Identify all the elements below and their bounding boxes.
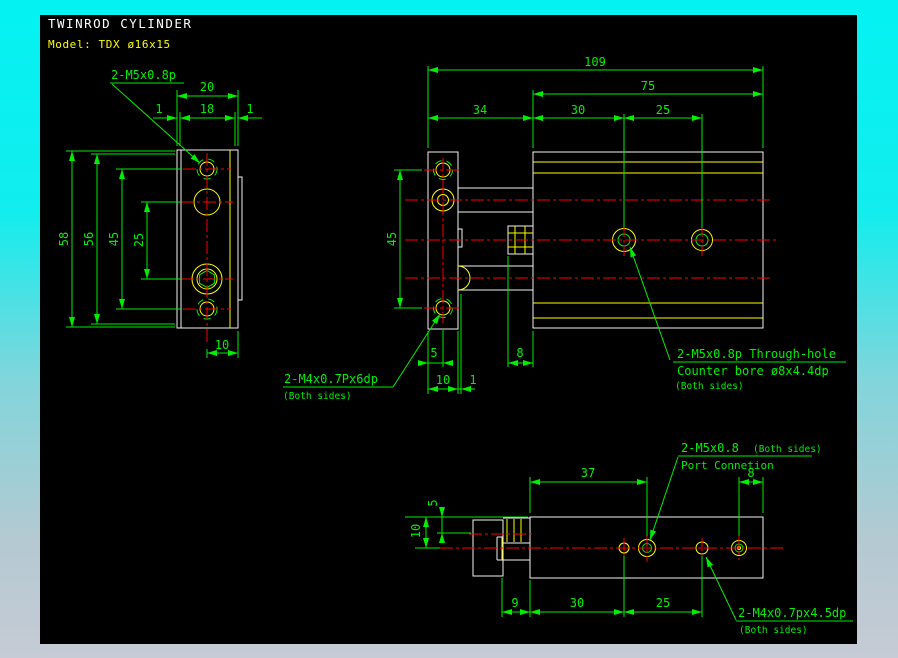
top-dim-34: 34 [473, 103, 487, 117]
top-callout-tap-line2: (Both sides) [283, 391, 352, 402]
bottom-dim-9: 9 [511, 596, 518, 610]
top-dim-25: 25 [656, 103, 670, 117]
front-callout-text: 2-M5x0.8p [111, 68, 176, 82]
top-dim-75: 75 [641, 79, 655, 93]
bottom-callout-port-sides: (Both sides) [753, 444, 822, 455]
bottom-callout-port-label: 2-M5x0.8 [681, 441, 739, 455]
cad-drawing: TWINROD CYLINDER Model: TDX ø16x15 [0, 0, 898, 658]
cad-viewer-window: TWINROD CYLINDER Model: TDX ø16x15 [0, 0, 898, 658]
bottom-dim-10: 10 [409, 524, 423, 538]
top-dim-109: 109 [584, 55, 606, 69]
bottom-callout-tap-line1: 2-M4x0.7px4.5dp [738, 606, 846, 620]
bottom-callout-port-line2: Port Connetion [681, 459, 774, 472]
top-dim-8: 8 [516, 346, 523, 360]
drawing-title: TWINROD CYLINDER [48, 16, 192, 31]
bottom-dim-25: 25 [656, 596, 670, 610]
front-dim-58: 58 [57, 232, 71, 246]
front-dim-45: 45 [107, 232, 121, 246]
front-dim-10: 10 [215, 338, 229, 352]
front-dim-20: 20 [200, 80, 214, 94]
front-dim-18: 18 [200, 102, 214, 116]
front-dim-1-right: 1 [246, 102, 253, 116]
front-dim-56: 56 [82, 232, 96, 246]
bottom-dim-30: 30 [570, 596, 584, 610]
top-callout-through-line3: (Both sides) [675, 381, 744, 392]
drawing-model: Model: TDX ø16x15 [48, 38, 171, 51]
top-dim-10: 10 [436, 373, 450, 387]
bottom-dim-5: 5 [426, 499, 440, 506]
top-callout-through-line2: Counter bore ø8x4.4dp [677, 364, 829, 378]
top-dim-5: 5 [430, 346, 437, 360]
bottom-callout-tap-line2: (Both sides) [739, 625, 808, 636]
bottom-dim-37: 37 [581, 466, 595, 480]
top-dim-45: 45 [385, 232, 399, 246]
front-dim-1-left: 1 [155, 102, 162, 116]
top-dim-30: 30 [571, 103, 585, 117]
front-dim-25: 25 [132, 233, 146, 247]
top-callout-through-line1: 2-M5x0.8p Through-hole [677, 347, 836, 361]
top-callout-tap-line1: 2-M4x0.7Px6dp [284, 372, 378, 386]
top-dim-1: 1 [469, 373, 476, 387]
